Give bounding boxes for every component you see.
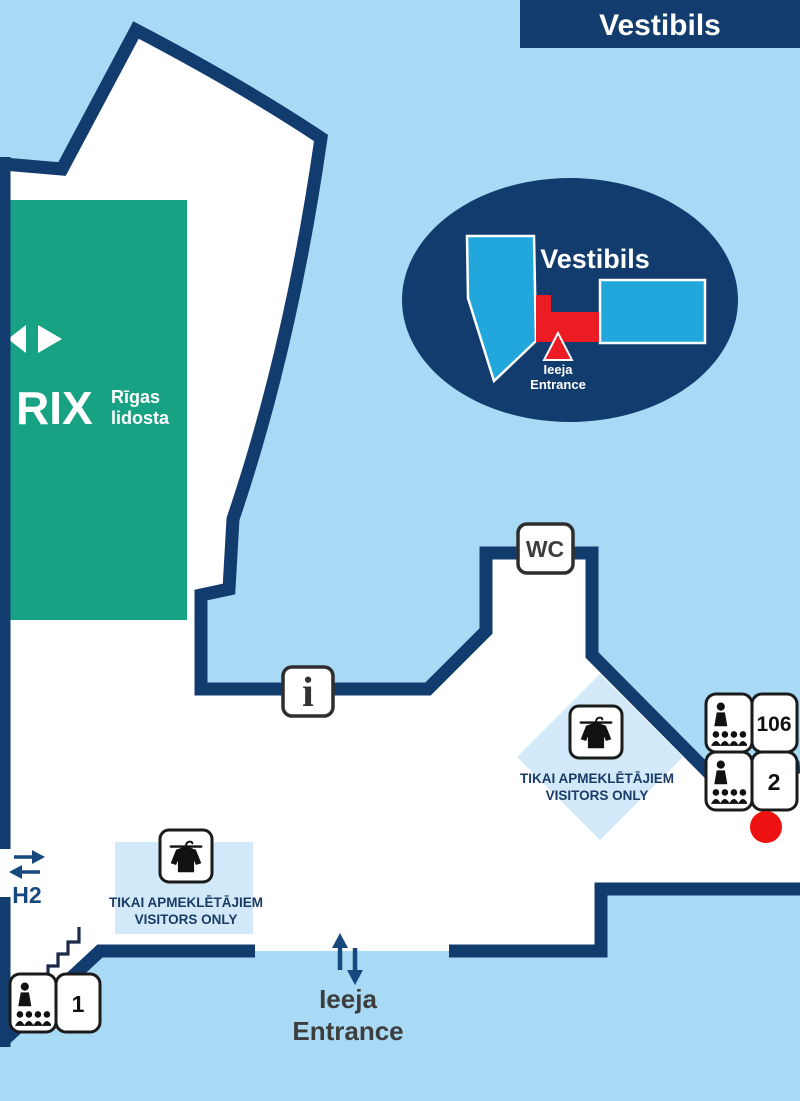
- visitors-only-left-line1: TIKAI APMEKLĒTĀJIEM: [109, 895, 263, 910]
- visitors-only-left-line2: VISITORS ONLY: [135, 912, 238, 927]
- coat-check-sign-right: [570, 706, 622, 758]
- room-sign-106: 106: [706, 694, 797, 752]
- entrance-label-lv: Ieeja: [319, 984, 377, 1014]
- room-number-106: 106: [756, 713, 791, 736]
- info-label: i: [302, 670, 314, 716]
- wc-sign: WC: [518, 524, 573, 573]
- wc-label: WC: [526, 536, 564, 562]
- inset-east-wing-shape: [600, 280, 705, 343]
- room-number-1: 1: [72, 991, 85, 1017]
- coat-check-sign-left: [160, 830, 212, 882]
- page-title: Vestibils: [599, 9, 721, 42]
- airport-floor-map: RIX Rīgas lidosta Vestibils Vestibils Ie…: [0, 0, 800, 1101]
- location-dot-marker: [750, 811, 782, 843]
- rix-logo-text: RIX: [16, 382, 93, 434]
- inset-entrance-label-lv: Ieeja: [544, 362, 574, 377]
- room-number-2: 2: [768, 769, 781, 795]
- inset-map: Vestibils Ieeja Entrance: [402, 178, 738, 422]
- h2-label: H2: [12, 882, 41, 908]
- rix-tagline-line2: lidosta: [111, 408, 170, 428]
- rix-tagline-line1: Rīgas: [111, 387, 160, 407]
- entrance-label-en: Entrance: [292, 1016, 403, 1046]
- room-sign-1: 1: [10, 974, 100, 1032]
- inset-title: Vestibils: [540, 244, 650, 274]
- room-sign-2: 2: [706, 752, 797, 810]
- map-svg: RIX Rīgas lidosta Vestibils Vestibils Ie…: [0, 0, 800, 1101]
- visitors-only-right-line1: TIKAI APMEKLĒTĀJIEM: [520, 771, 674, 786]
- visitors-only-right-line2: VISITORS ONLY: [546, 788, 649, 803]
- inset-entrance-label-en: Entrance: [530, 377, 586, 392]
- info-sign: i: [283, 667, 333, 716]
